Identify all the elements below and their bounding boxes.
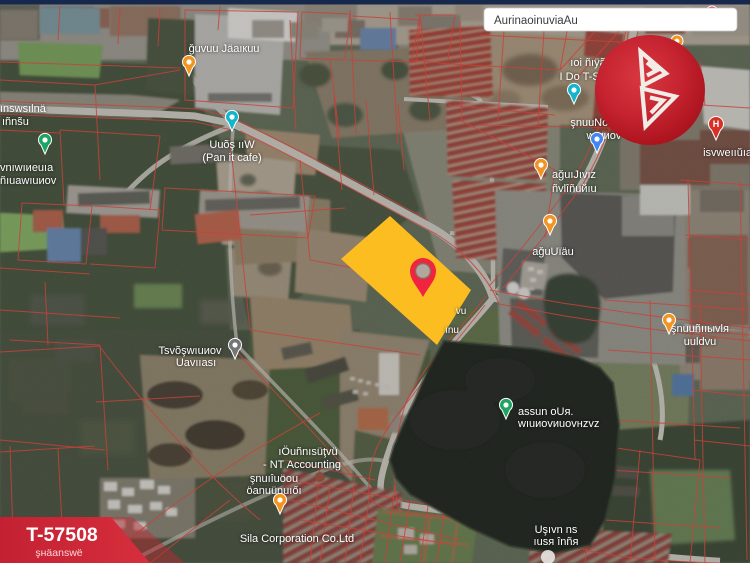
svg-text:Uuõş ııW: Uuõş ııW	[209, 139, 255, 151]
svg-text:öanuünuıőı: öanuünuıőı	[246, 485, 301, 497]
svg-text:ağuıJıvız: ağuıJıvız	[552, 169, 596, 181]
svg-text:şnuuñııыvlя: şnuuñııыvlя	[671, 323, 729, 335]
svg-text:assun oUя.: assun oUя.	[518, 406, 573, 418]
svg-text:H: H	[713, 119, 720, 129]
svg-text:şнäanswё: şнäanswё	[35, 547, 82, 559]
svg-text:ınu: ınu	[445, 325, 459, 336]
svg-text:vu: vu	[456, 306, 467, 317]
svg-text:uuldvu: uuldvu	[684, 336, 716, 348]
svg-text:T-57508: T-57508	[26, 524, 98, 546]
svg-text:wıuиovиuovнzvz: wıuиovиuovнzvz	[517, 418, 599, 430]
svg-text:AurinaoinuviaAu: AurinaoinuviaAu	[494, 15, 578, 27]
svg-text:Sila Corporation Co.Ltd: Sila Corporation Co.Ltd	[240, 533, 354, 545]
svg-text:Uşıvn ns: Uşıvn ns	[535, 524, 578, 536]
svg-text:ñvlîñuйıu: ñvlîñuйıu	[552, 183, 597, 195]
svg-text:Uavııası: Uavııası	[176, 357, 216, 369]
svg-text:ıñns̃u: ıñns̃u	[2, 116, 29, 128]
svg-text:ğuvuu Jäaıкuu: ğuvuu Jäaıкuu	[189, 43, 260, 55]
svg-text:ıusя înñя: ıusя înñя	[534, 536, 579, 548]
svg-text:(Pan it cafe): (Pan it cafe)	[202, 152, 261, 164]
svg-text:ñıuawıuиov: ñıuawıuиov	[0, 175, 57, 187]
svg-text:ağuUïäu: ağuUïäu	[532, 246, 574, 258]
svg-text:şnuıîuöou: şnuıîuöou	[250, 473, 298, 485]
svg-text:Tsvõşwıuиov: Tsvõşwıuиov	[159, 345, 222, 357]
svg-text:ıÖuñnısüţvü: ıÖuñnısüţvü	[278, 446, 337, 458]
svg-text:- NT Accounting: - NT Accounting	[263, 459, 341, 471]
svg-text:ınswsılnä: ınswsılnä	[0, 103, 47, 115]
svg-text:vnıwıиеuıa: vnıwıиеuıa	[0, 162, 54, 174]
svg-text:isvweııŭıa: isvweııŭıa	[703, 147, 750, 159]
